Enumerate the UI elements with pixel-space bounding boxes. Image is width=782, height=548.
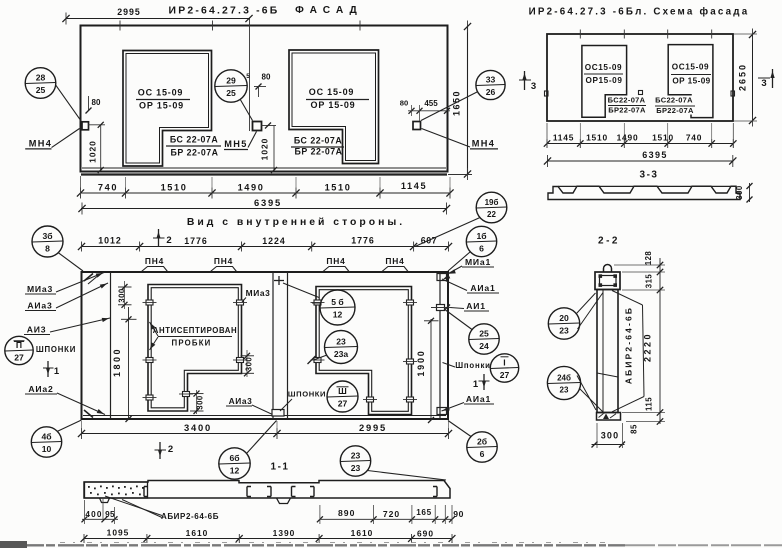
svg-text:27: 27	[338, 399, 348, 409]
svg-text:ПН4: ПН4	[385, 256, 404, 266]
svg-text:23: 23	[559, 326, 569, 336]
svg-text:6б: 6б	[229, 453, 239, 463]
svg-text:115: 115	[645, 397, 654, 411]
svg-text:1490: 1490	[238, 183, 265, 193]
svg-text:2995: 2995	[359, 422, 387, 433]
svg-text:I: I	[503, 358, 505, 368]
svg-text:27: 27	[500, 370, 510, 380]
svg-text:19б: 19б	[485, 198, 499, 207]
svg-text:ОС 15-09: ОС 15-09	[309, 87, 354, 97]
svg-text:10: 10	[42, 444, 52, 454]
svg-text:1800: 1800	[112, 347, 122, 377]
svg-text:25: 25	[479, 329, 489, 339]
svg-text:3: 3	[531, 81, 536, 92]
svg-text:690: 690	[417, 529, 434, 539]
svg-text:315: 315	[645, 274, 654, 289]
svg-text:1: 1	[54, 366, 60, 377]
svg-text:1510: 1510	[161, 183, 188, 193]
svg-text:АИа3: АИа3	[27, 301, 52, 311]
svg-text:455: 455	[424, 99, 438, 108]
svg-text:24: 24	[479, 341, 489, 351]
svg-text:МН4: МН4	[472, 139, 496, 149]
svg-text:300: 300	[735, 185, 744, 200]
svg-text:ОР 15-09: ОР 15-09	[672, 77, 710, 86]
svg-text:ОС 15-09: ОС 15-09	[138, 88, 183, 98]
svg-text:6: 6	[480, 449, 485, 459]
svg-text:БР22-07А: БР22-07А	[656, 106, 694, 115]
svg-text:165: 165	[416, 508, 431, 517]
svg-text:740: 740	[686, 133, 702, 143]
svg-text:ШПОНКИ: ШПОНКИ	[36, 345, 76, 354]
svg-text:1012: 1012	[98, 236, 122, 246]
svg-text:АИ3: АИ3	[27, 325, 47, 335]
svg-text:1650: 1650	[452, 90, 462, 116]
svg-text:128: 128	[644, 251, 653, 266]
svg-text:24б: 24б	[557, 374, 571, 383]
svg-text:АБИР2-64-6Б: АБИР2-64-6Б	[161, 512, 219, 521]
svg-text:2220: 2220	[643, 332, 653, 362]
svg-text:МН5: МН5	[224, 139, 248, 149]
svg-text:80: 80	[92, 98, 101, 107]
svg-text:1610: 1610	[351, 528, 374, 538]
svg-text:1095: 1095	[107, 528, 130, 538]
svg-text:4б: 4б	[41, 432, 51, 442]
svg-text:ПРОБКИ: ПРОБКИ	[172, 339, 212, 348]
svg-text:23: 23	[351, 463, 361, 473]
svg-text:1776: 1776	[184, 236, 208, 246]
svg-text:80: 80	[262, 73, 271, 82]
svg-text:Ш: Ш	[338, 386, 347, 396]
svg-text:400: 400	[85, 510, 102, 519]
svg-text:1490: 1490	[617, 133, 639, 143]
svg-text:85: 85	[630, 424, 639, 434]
svg-text:ОС15-09: ОС15-09	[672, 63, 709, 72]
svg-text:1020: 1020	[88, 140, 98, 163]
svg-text:300: 300	[601, 431, 620, 441]
svg-text:1510: 1510	[586, 133, 608, 143]
svg-text:28: 28	[36, 73, 46, 83]
svg-text:1900: 1900	[416, 349, 426, 376]
svg-text:ИР2-64.27.3 -6Б: ИР2-64.27.3 -6Б	[169, 6, 280, 17]
svg-text:29: 29	[226, 76, 236, 86]
svg-text:1776: 1776	[351, 236, 375, 246]
svg-text:АИа1: АИа1	[470, 283, 495, 293]
svg-text:12: 12	[333, 310, 343, 320]
svg-text:20: 20	[559, 313, 569, 323]
svg-text:Вид с внутренней стороны.: Вид с внутренней стороны.	[187, 217, 405, 228]
svg-text:БР 22-07А: БР 22-07А	[295, 147, 343, 157]
svg-text:МИа1: МИа1	[465, 257, 491, 267]
svg-text:12: 12	[230, 466, 240, 476]
svg-text:БР22-07А: БР22-07А	[608, 106, 646, 115]
svg-text:ИР2-64.27.3 -6Бл. Схема фасада: ИР2-64.27.3 -6Бл. Схема фасада	[529, 7, 750, 18]
svg-text:2650: 2650	[738, 63, 748, 91]
svg-text:ШПОНКИ: ШПОНКИ	[288, 390, 326, 399]
svg-text:23: 23	[336, 337, 346, 347]
svg-text:720: 720	[383, 509, 400, 519]
svg-text:АИ1: АИ1	[466, 301, 486, 311]
svg-text:1390: 1390	[273, 528, 296, 538]
svg-text:300: 300	[245, 357, 254, 372]
svg-text:АИа2: АИа2	[28, 384, 53, 394]
svg-text:890: 890	[338, 508, 355, 518]
svg-text:95: 95	[105, 510, 115, 519]
svg-text:1145: 1145	[553, 133, 574, 143]
svg-text:Шпонки: Шпонки	[455, 361, 491, 370]
svg-text:БС 22-07А: БС 22-07А	[294, 136, 343, 146]
svg-text:23а: 23а	[334, 349, 349, 359]
svg-text:6395: 6395	[642, 150, 668, 160]
svg-text:2: 2	[168, 444, 173, 455]
svg-text:1510: 1510	[652, 133, 674, 143]
svg-text:ОР 15-09: ОР 15-09	[311, 100, 356, 110]
svg-text:1510: 1510	[325, 183, 352, 193]
svg-text:3б: 3б	[42, 231, 52, 241]
svg-text:АБИР2-64-6Б: АБИР2-64-6Б	[624, 306, 634, 384]
svg-text:8: 8	[45, 244, 50, 254]
svg-text:МИа3: МИа3	[27, 284, 53, 294]
svg-text:2995: 2995	[117, 7, 141, 17]
svg-text:БР 22-07А: БР 22-07А	[171, 148, 219, 158]
svg-text:6395: 6395	[254, 197, 282, 208]
svg-text:1б: 1б	[476, 231, 486, 241]
svg-text:БС 22-07А: БС 22-07А	[170, 135, 219, 145]
svg-text:1020: 1020	[260, 138, 270, 161]
svg-text:1: 1	[473, 379, 479, 390]
svg-text:2: 2	[166, 235, 171, 246]
svg-text:5 б: 5 б	[331, 297, 343, 307]
svg-text:ПН4: ПН4	[326, 256, 345, 266]
svg-text:6: 6	[479, 244, 484, 254]
svg-text:33: 33	[486, 75, 496, 85]
svg-text:5: 5	[246, 73, 250, 80]
svg-text:1610: 1610	[186, 528, 209, 538]
svg-text:23: 23	[560, 386, 569, 395]
svg-text:2-2: 2-2	[598, 236, 620, 247]
svg-text:БС22-07А: БС22-07А	[608, 96, 646, 105]
svg-text:27: 27	[14, 353, 24, 363]
svg-text:2б: 2б	[477, 437, 487, 447]
svg-text:1145: 1145	[401, 181, 427, 191]
svg-text:3400: 3400	[184, 422, 212, 433]
svg-text:1-1: 1-1	[271, 462, 290, 473]
svg-text:ОС15-09: ОС15-09	[585, 63, 622, 72]
svg-text:МН4: МН4	[29, 139, 53, 149]
svg-text:АИа1: АИа1	[466, 394, 491, 404]
svg-text:ФАСАД: ФАСАД	[295, 5, 363, 16]
svg-text:80: 80	[400, 99, 408, 108]
svg-text:1224: 1224	[262, 236, 286, 246]
svg-text:АНТИСЕПТИРОВАН: АНТИСЕПТИРОВАН	[153, 326, 238, 335]
svg-text:25: 25	[36, 85, 46, 95]
svg-text:3-3: 3-3	[640, 170, 659, 181]
svg-text:22: 22	[487, 210, 496, 219]
svg-text:25: 25	[226, 88, 236, 98]
svg-text:АИа3: АИа3	[229, 396, 253, 406]
svg-text:БС22-07А: БС22-07А	[655, 96, 693, 105]
svg-text:26: 26	[486, 87, 496, 97]
svg-text:ОР 15-09: ОР 15-09	[139, 101, 184, 111]
svg-text:740: 740	[98, 183, 118, 193]
svg-text:ОР15-09: ОР15-09	[586, 76, 623, 85]
svg-text:МИа3: МИа3	[246, 288, 271, 298]
svg-text:3: 3	[761, 78, 766, 89]
svg-text:90: 90	[453, 509, 464, 519]
svg-text:ПН4: ПН4	[214, 256, 233, 266]
svg-text:ПН4: ПН4	[145, 256, 164, 266]
svg-text:23: 23	[351, 451, 361, 461]
